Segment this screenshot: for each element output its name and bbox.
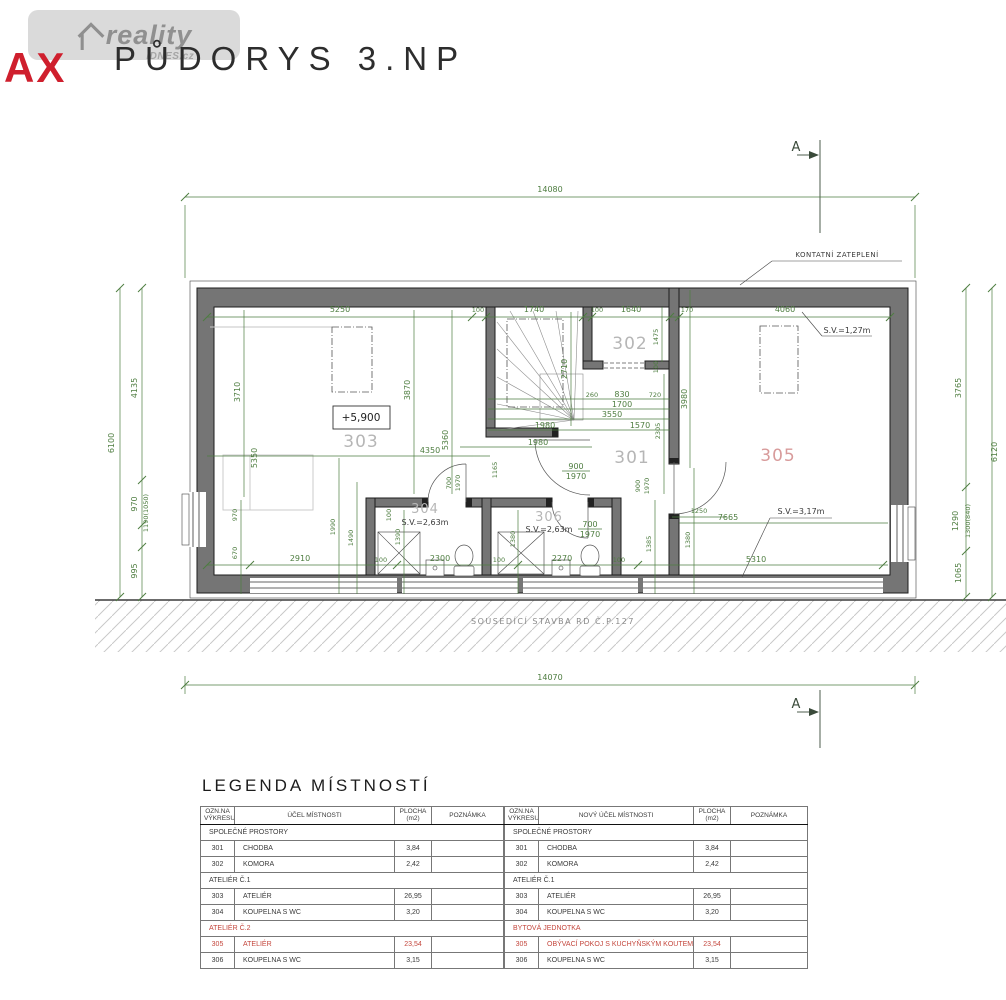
table-row: 301CHODBA3,84 [201,840,504,856]
sv-305-top: S.V.=1,27m [824,326,871,335]
dim-label: 900 [568,462,583,471]
table-row: 302KOMORA2,42 [201,856,504,872]
room-label-302: 302 [612,334,647,354]
ground-hatch: SOUSEDÍCÍ STAVBA RD Č.P.127 [95,600,1006,652]
dim-label: 2910 [290,554,310,563]
room-label-303: 303 [343,432,378,452]
dim-label: 100 [591,306,603,314]
neighbor-building-note: SOUSEDÍCÍ STAVBA RD Č.P.127 [471,615,635,626]
table-row: 306KOUPELNA S WC3,15 [201,952,504,968]
room-label-306: 306 [535,510,563,525]
dim-label: 3870 [403,380,412,400]
section-row: ATELIÉR Č.1 [201,872,504,888]
col-header-note: POZNÁMKA [731,807,808,825]
dim-label: 6100 [107,433,116,453]
dim-label: 5250 [330,305,350,314]
dim-label: 3980 [680,389,689,409]
dim-label: 4135 [130,378,139,398]
dim-label: 1970 [580,530,600,539]
dim-label: 100 [385,509,393,521]
dim-label: 830 [614,390,629,399]
dim-label: 100 [472,306,484,314]
exterior-walls [197,288,908,593]
staircase [497,311,583,430]
dim-label: 670 [231,547,239,559]
dim-label: 4060 [775,305,795,314]
dim-label: 1490 [347,530,355,547]
legend-table-left: OZN.NAVÝKRESU ÚČEL MÍSTNOSTI PLOCHA(m2) … [200,806,504,969]
dim-label: 100 [493,556,505,564]
dim-label: 970 [231,509,239,521]
dim-label: 1740 [524,305,544,314]
room-labels: 303 302 301 304 306 305 S.V.=2,63m S.V.=… [343,334,795,534]
insulation-contour [190,281,916,598]
dim-label: 1640 [621,305,641,314]
table-row: 303ATELIÉR26,95 [505,888,808,904]
section-row: ATELIÉR Č.2 [201,920,504,936]
section-label-top: A [792,140,801,155]
dim-label: 720 [649,391,661,399]
roof-window-303 [332,327,372,392]
col-header-name: ÚČEL MÍSTNOSTI [235,807,395,825]
dim-label: 14080 [537,185,562,194]
floor-plan-page: reality iDNES.cz AX PŮDORYS 3.NP SOUSEDÍ… [0,0,1006,1000]
dim-label: 5360 [441,430,450,450]
dim-label: 3710 [233,382,242,402]
dim-label: 7665 [718,513,738,522]
dim-label: 2305 [654,423,662,440]
dim-label: 6120 [990,442,999,462]
dim-label: 1475 [652,329,660,346]
col-header-name: NOVÝ ÚČEL MÍSTNOSTI [539,807,694,825]
room-legend: LEGENDA MÍSTNOSTÍ OZN.NAVÝKRESU ÚČEL MÍS… [200,776,806,969]
dim-label: 5310 [746,555,766,564]
dim-label: 170 [681,306,693,314]
table-row: 306KOUPELNA S WC3,15 [505,952,808,968]
dim-label: 900 [634,480,642,492]
col-header-area: PLOCHA(m2) [694,807,731,825]
table-row: 304KOUPELNA S WC3,20 [505,904,808,920]
dim-label: 1970 [643,478,651,495]
section-label-bottom: A [792,697,801,712]
dim-label: 1970 [566,472,586,481]
dim-label: 1385 [645,536,653,553]
legend-title: LEGENDA MÍSTNOSTÍ [202,776,806,796]
dim-label: 100 [613,556,625,564]
dim-label: 1380 [509,531,517,548]
section-marks: A A [792,140,820,748]
col-header-id: OZN.NAVÝKRESU [505,807,539,825]
roof-window-305 [760,326,798,393]
section-row: SPOLEČNÉ PROSTORY [201,824,504,840]
dim-label: 3765 [954,378,963,398]
legend-table-right: OZN.NAVÝKRESU NOVÝ ÚČEL MÍSTNOSTI PLOCHA… [504,806,808,969]
dim-label: 995 [130,563,139,578]
dim-label: 5350 [250,448,259,468]
col-header-area: PLOCHA(m2) [395,807,432,825]
dim-label: 1300(840) [964,504,972,538]
furniture [210,326,798,510]
dim-label: 14070 [537,673,562,682]
table-row: 304KOUPELNA S WC3,20 [201,904,504,920]
level-label: +5,900 [342,412,381,424]
dim-label: 2300 [430,554,450,563]
col-header-note: POZNÁMKA [432,807,504,825]
table-row: 305OBÝVACÍ POKOJ S KUCHYŇSKÝM KOUTEM23,5… [505,936,808,952]
dim-label: 2270 [552,554,572,563]
insulation-note: KONTATNÍ ZATEPLENÍ [795,250,878,259]
dim-label: 100 [375,556,387,564]
dim-label: 1290 [951,511,960,531]
dim-label: 1380 [684,532,692,549]
section-row: ATELIÉR Č.1 [505,872,808,888]
dim-label: 1190(1050) [142,494,150,532]
dim-label: 970 [130,496,139,511]
dim-label: 1390 [394,529,402,546]
toilet-304 [455,545,473,567]
dim-label: 3550 [602,410,622,419]
dim-label: 100 [652,361,660,373]
dim-label: 1980 [535,421,555,430]
dim-label: 1250 [691,507,708,515]
col-header-id: OZN.NAVÝKRESU [201,807,235,825]
dim-label: 2710 [560,359,569,379]
section-row: SPOLEČNÉ PROSTORY [505,824,808,840]
toilet-306 [581,545,599,567]
table-row: 305ATELIÉR23,54 [201,936,504,952]
dim-label: 4350 [420,446,440,455]
dim-label: 1570 [630,421,650,430]
dim-label: 700 [582,520,597,529]
table-row: 301CHODBA3,84 [505,840,808,856]
sv-306: S.V.=2,63m [526,525,573,534]
dim-label: 1990 [329,519,337,536]
table-row: 303ATELIÉR26,95 [201,888,504,904]
room-label-301: 301 [614,448,649,468]
dim-label: 1970 [454,475,462,492]
dim-label: 1980 [528,438,548,447]
sv-304: S.V.=2,63m [402,518,449,527]
room-label-305: 305 [760,446,795,466]
room-label-304: 304 [411,502,439,517]
table-row: 302KOMORA2,42 [505,856,808,872]
dim-label: 1165 [491,462,499,479]
sv-305-bottom: S.V.=3,17m [778,507,825,516]
dim-label: 1065 [954,563,963,583]
dim-label: 1700 [612,400,632,409]
dim-label: 700 [445,477,453,489]
dim-label: 260 [586,391,598,399]
section-row: BYTOVÁ JEDNOTKA [505,920,808,936]
